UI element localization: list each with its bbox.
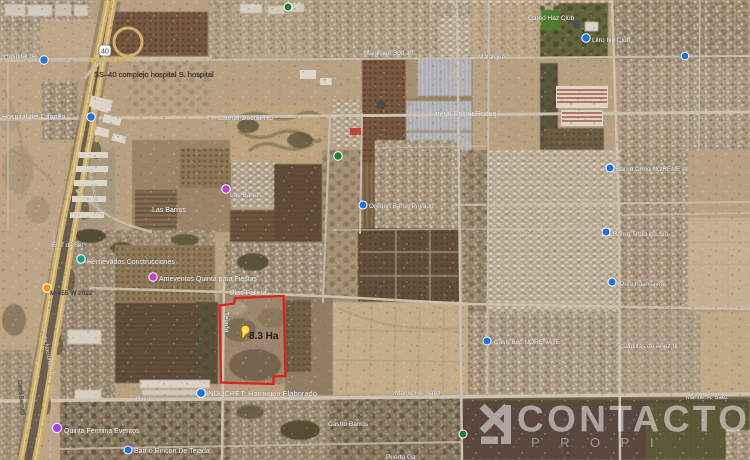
svg-text:Barrio Choq NORENE At: Barrio Choq NORENE At [616,166,688,173]
svg-text:Puerto Ga: Puerto Ga [386,454,416,460]
svg-text:40: 40 [101,49,109,56]
svg-text:Hospital de: Hospital de [4,53,37,60]
svg-text:cuadillas de Añez III: cuadillas de Añez III [620,343,678,350]
svg-text:Hospital del Carmen: Hospital del Carmen [2,114,66,121]
svg-text:Castro Barros: Castro Barros [328,421,369,428]
svg-text:Barrio Rincon De Tejada: Barrio Rincon De Tejada [134,448,210,455]
svg-text:Manuel A. Sáez: Manuel A. Sáez [686,395,728,401]
svg-text:Hernevados Construcciones: Hernevados Construcciones [87,259,175,266]
svg-text:El. 7 de Set: El. 7 de Set [52,243,83,249]
svg-text:Las Barros: Las Barros [152,207,186,214]
svg-text:CONTACTO: CONTACTO [517,399,750,440]
svg-text:Lateral Doctor Rodrig: Lateral Doctor Rodrig [430,111,497,118]
svg-text:Tejada: Tejada [222,312,230,333]
svg-text:8.3 Ha: 8.3 Ha [249,331,279,342]
svg-text:Puncho ins jime: Puncho ins jime [620,281,666,288]
svg-text:PROPI: PROPI [531,435,674,450]
svg-text:Castr Buc NORENAJE: Castr Buc NORENAJE [494,339,560,346]
svg-text:Boedo: Boedo [136,397,154,403]
svg-text:Quinta Fermina Eventos: Quinta Fermina Eventos [64,428,140,435]
svg-text:M-455 W 2022: M-455 W 2022 [50,290,93,297]
svg-text:Malargüe: Malargüe [478,54,505,61]
svg-text:Litro hip Club: Litro hip Club [592,37,631,44]
svg-text:Gateo Haz Club: Gateo Haz Club [528,15,575,22]
svg-text:Ameventos Quinta para Fiestas: Ameventos Quinta para Fiestas [159,276,258,283]
svg-text:Barrio Thod ins Sio: Barrio Thod ins Sio [613,231,669,238]
svg-text:Manuel A. Sáez: Manuel A. Sáez [395,390,441,397]
svg-text:INDUCRET: Hormigon Elaborado: INDUCRET: Hormigon Elaborado [206,389,317,398]
svg-text:Malargüe Sod 10: Malargüe Sod 10 [364,50,414,57]
svg-text:SS–40 complejo hospital S. hos: SS–40 complejo hospital S. hospital [94,70,214,79]
svg-text:Las Barros: Las Barros [230,192,262,199]
svg-text:Oregon Barrio Privado: Oregon Barrio Privado [369,203,434,210]
svg-text:Blas Parera: Blas Parera [230,290,267,297]
svg-text:Lateral Doctor Ro: Lateral Doctor Ro [218,115,273,122]
